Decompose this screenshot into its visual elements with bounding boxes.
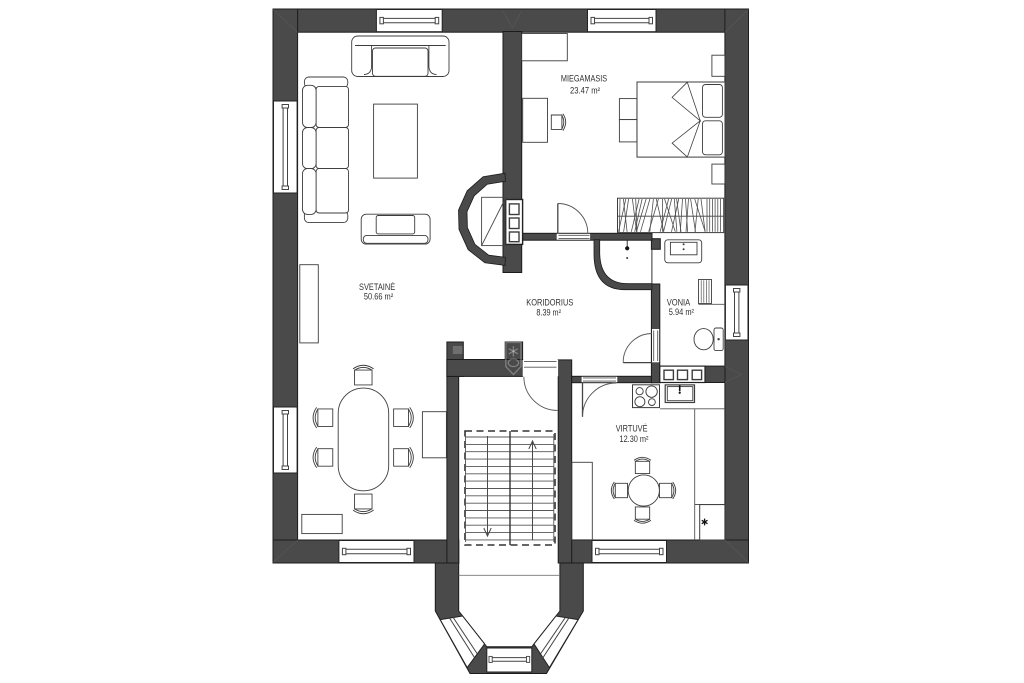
svg-text:23.47 m²: 23.47 m² [570, 85, 600, 95]
svg-text:8.39 m²: 8.39 m² [536, 308, 561, 318]
svg-text:SVETAINĖ: SVETAINĖ [359, 282, 395, 292]
svg-text:50.66 m²: 50.66 m² [364, 292, 393, 302]
svg-text:KORIDORIUS: KORIDORIUS [526, 297, 573, 307]
svg-text:VIRTUVĖ: VIRTUVĖ [616, 424, 648, 434]
svg-text:MIEGAMASIS: MIEGAMASIS [561, 73, 607, 83]
svg-text:12.30 m²: 12.30 m² [620, 434, 649, 444]
svg-text:5.94 m²: 5.94 m² [669, 307, 694, 317]
